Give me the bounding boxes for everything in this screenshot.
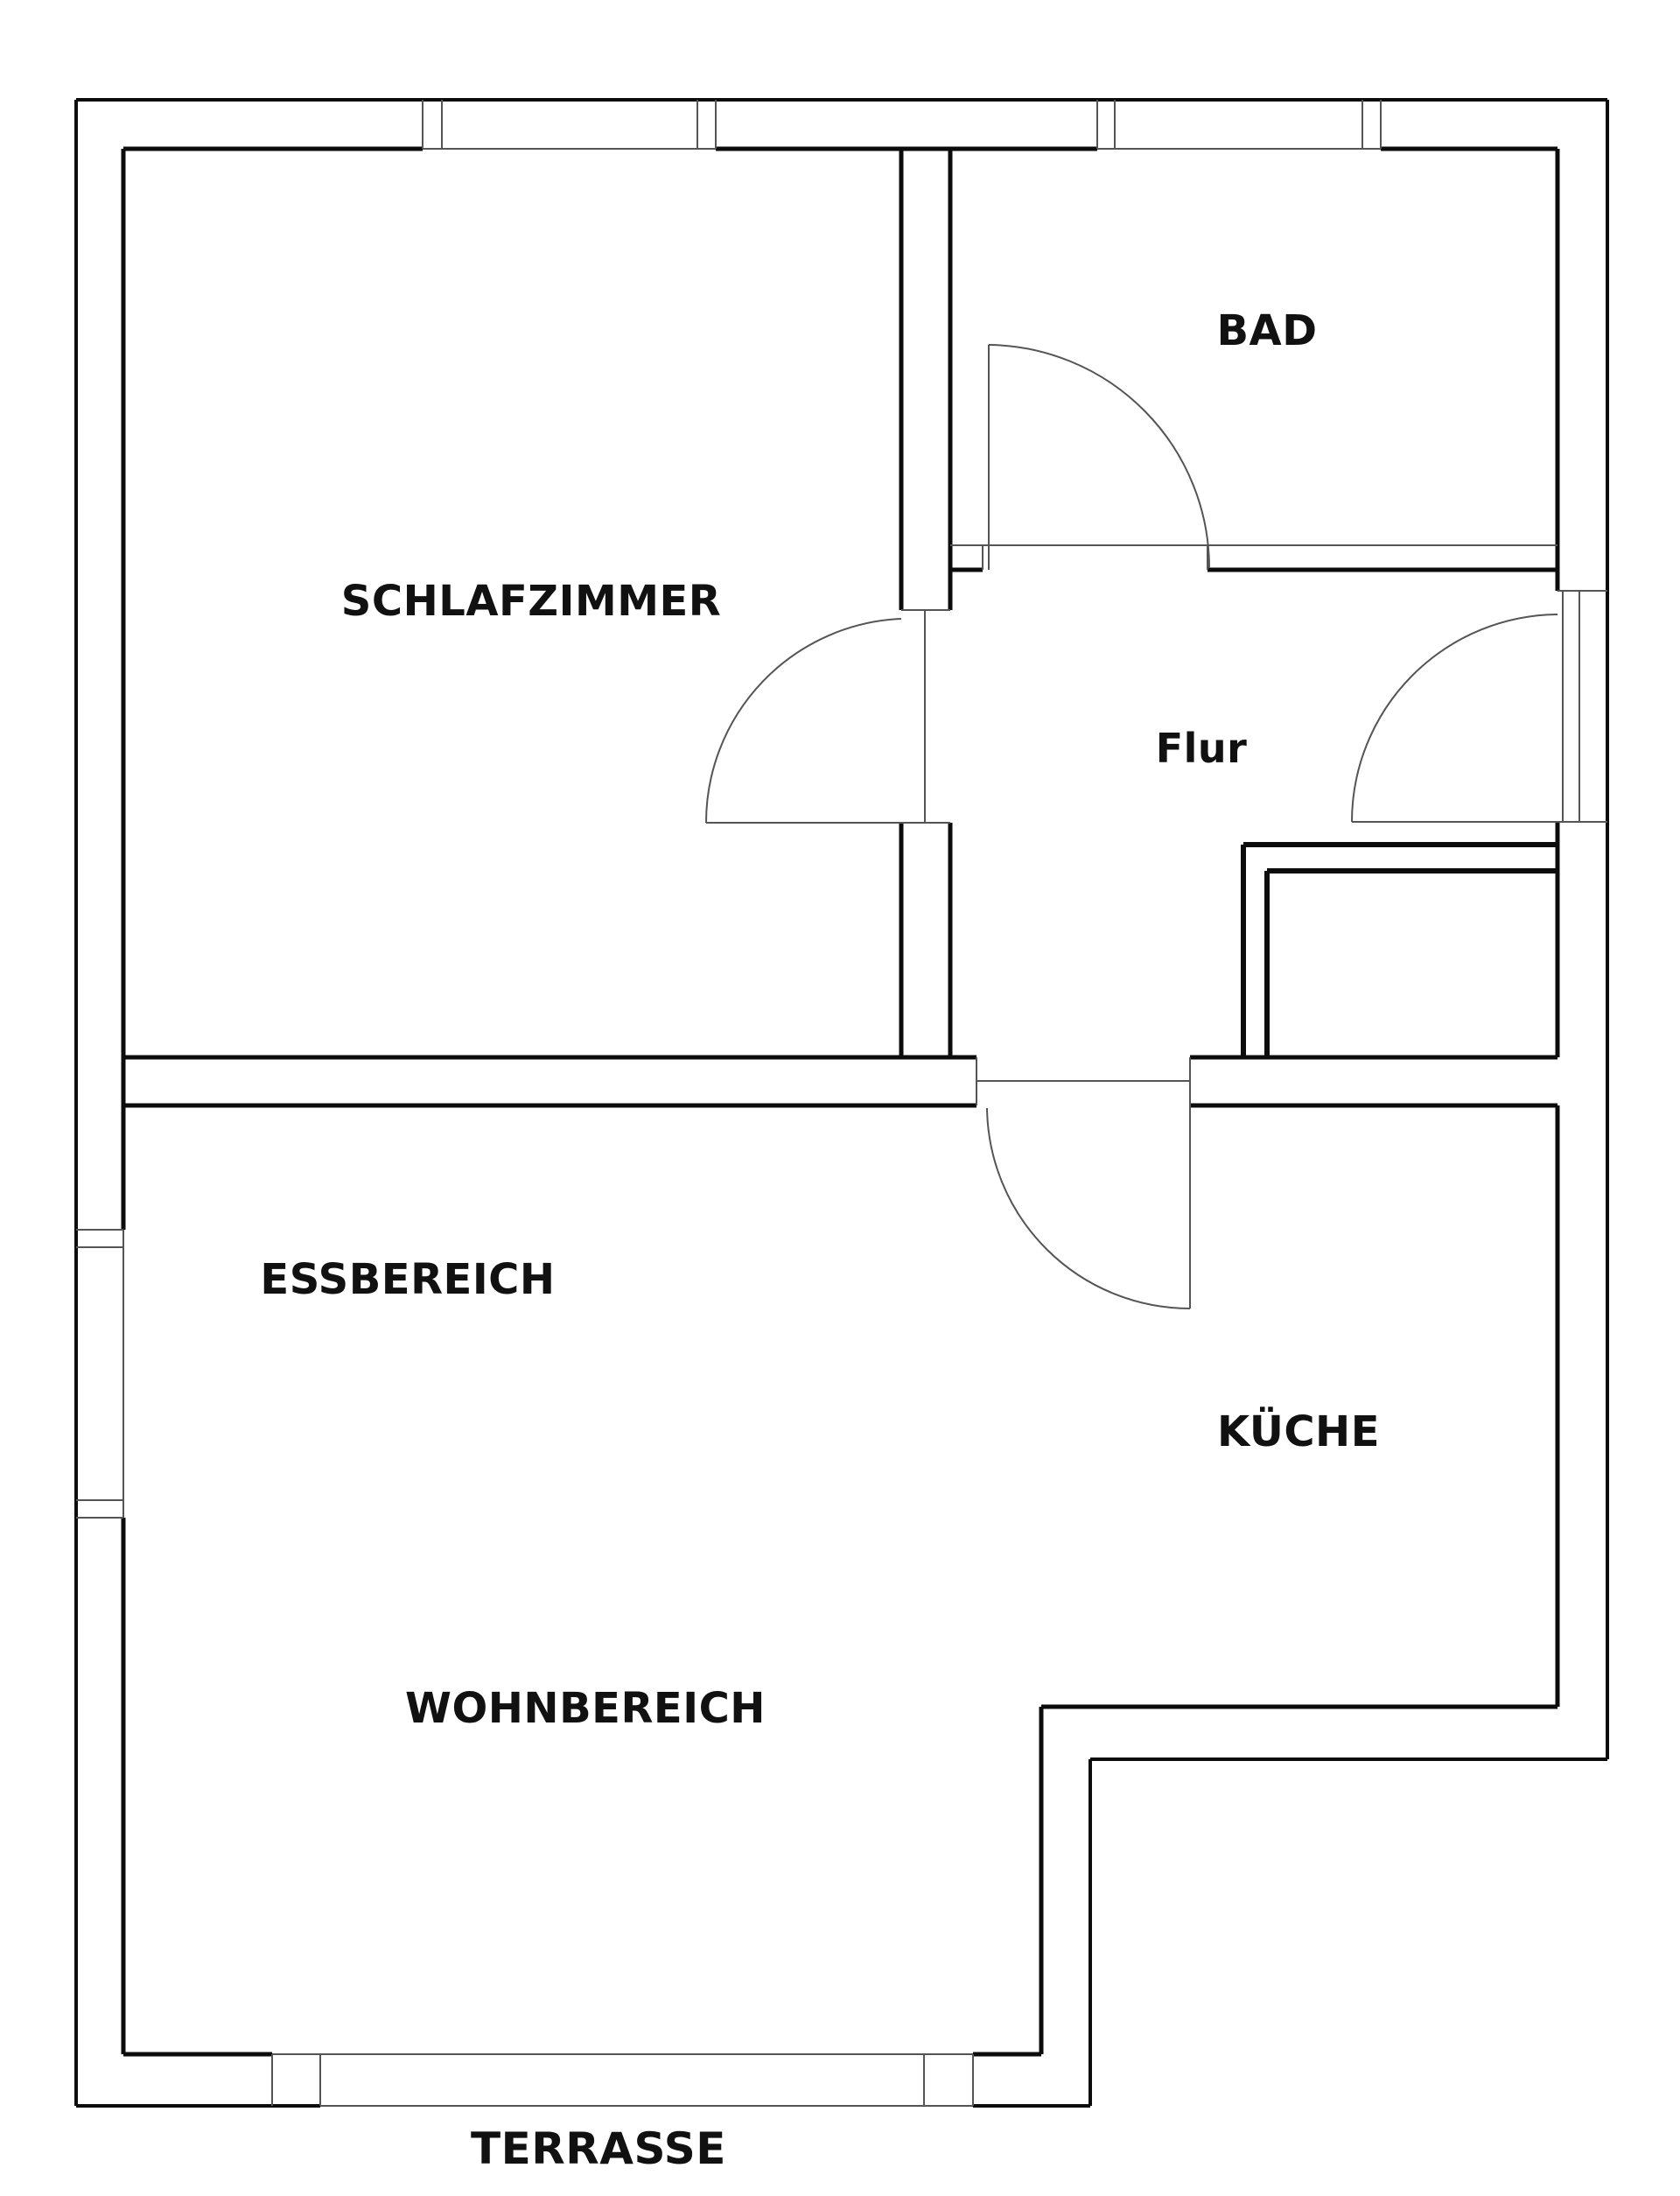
window-top-bad xyxy=(1097,100,1381,149)
label-terrasse: TERRASSE xyxy=(471,2123,726,2174)
label-essbereich: ESSBEREICH xyxy=(260,1255,555,1304)
door-swing-arc xyxy=(706,619,901,823)
door-kueche xyxy=(976,1057,1190,1308)
door-entrance xyxy=(1352,591,1607,822)
label-kueche: KÜCHE xyxy=(1217,1407,1380,1456)
label-flur: Flur xyxy=(1156,725,1248,772)
label-bad: BAD xyxy=(1216,306,1317,355)
interior-walls xyxy=(123,149,1557,1105)
floor-plan-canvas: SCHLAFZIMMER BAD Flur ESSBEREICH KÜCHE W… xyxy=(0,0,1680,2196)
doors xyxy=(706,345,1607,1308)
window-top-schlafzimmer xyxy=(423,100,716,149)
door-schlafzimmer xyxy=(706,610,950,823)
label-schlafzimmer: SCHLAFZIMMER xyxy=(341,577,721,626)
outer-walls xyxy=(76,100,1607,2106)
window-left-essbereich xyxy=(76,1230,123,1518)
door-bad xyxy=(983,345,1209,570)
window-bottom-terrasse xyxy=(272,2054,973,2106)
door-swing-arc xyxy=(1352,614,1557,822)
label-wohnbereich: WOHNBEREICH xyxy=(405,1684,766,1733)
inner-wall-edges xyxy=(123,149,1557,2054)
windows xyxy=(76,100,1381,2106)
room-labels: SCHLAFZIMMER BAD Flur ESSBEREICH KÜCHE W… xyxy=(260,306,1380,2174)
door-swing-arc xyxy=(987,1108,1190,1308)
storage-room xyxy=(1243,845,1557,1057)
floor-plan: SCHLAFZIMMER BAD Flur ESSBEREICH KÜCHE W… xyxy=(0,0,1680,2196)
door-swing-arc xyxy=(989,345,1209,568)
